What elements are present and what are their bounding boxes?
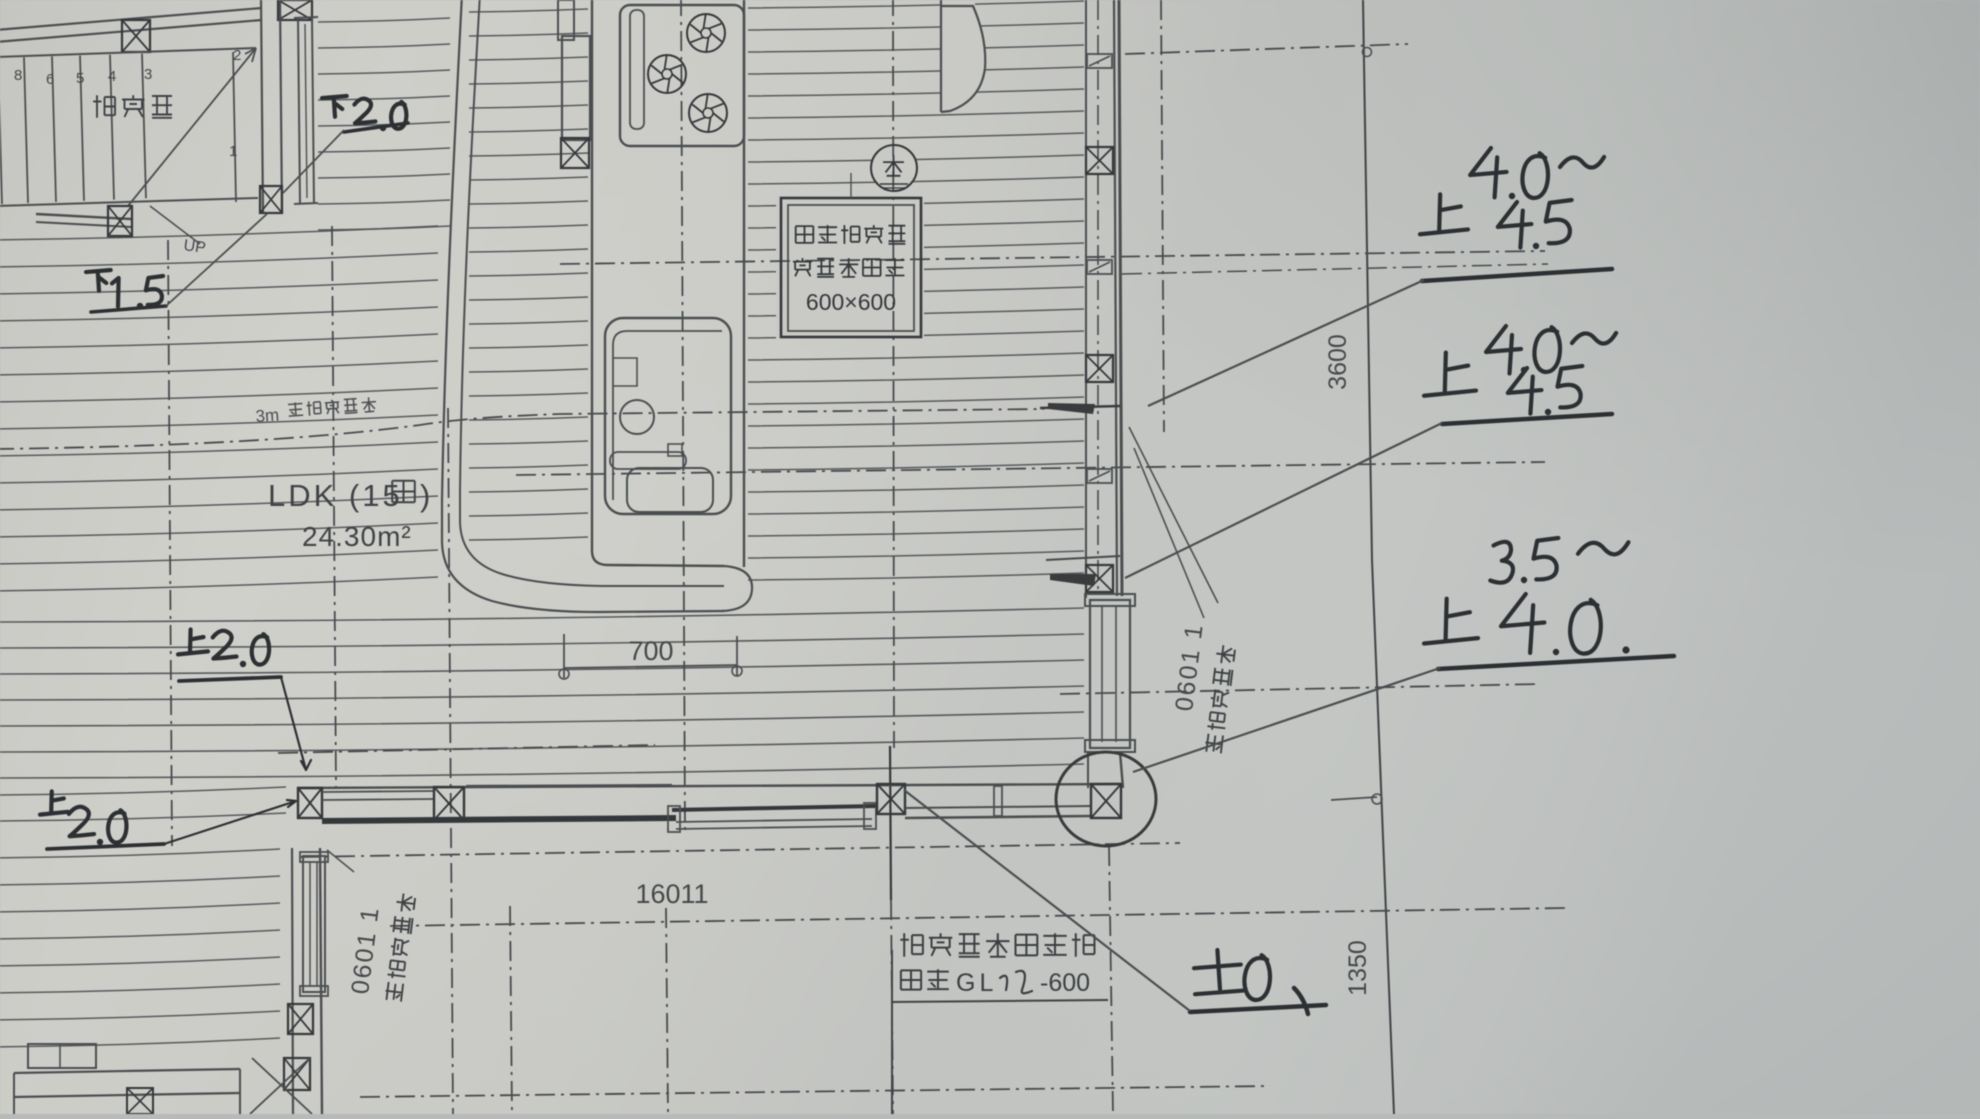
svg-text:UP: UP [182,237,206,257]
svg-text:4: 4 [108,68,116,85]
svg-text:-600: -600 [1040,969,1090,997]
svg-text:GL: GL [956,969,997,997]
svg-text:1: 1 [229,143,237,160]
svg-text:600×600: 600×600 [806,289,896,315]
svg-text:LDK (15: LDK (15 [268,478,403,513]
svg-text:6: 6 [46,71,54,88]
svg-text:2: 2 [233,47,241,64]
svg-text:8: 8 [14,67,22,84]
svg-text:3: 3 [144,66,152,83]
svg-text:24.30m²: 24.30m² [302,521,412,552]
svg-text:3m: 3m [255,405,280,426]
svg-text:1350: 1350 [1344,940,1372,996]
svg-text:3600: 3600 [1324,334,1352,390]
svg-text:): ) [420,478,430,513]
svg-text:16011: 16011 [635,879,708,909]
svg-text:700: 700 [628,636,673,666]
svg-text:5: 5 [76,70,84,87]
